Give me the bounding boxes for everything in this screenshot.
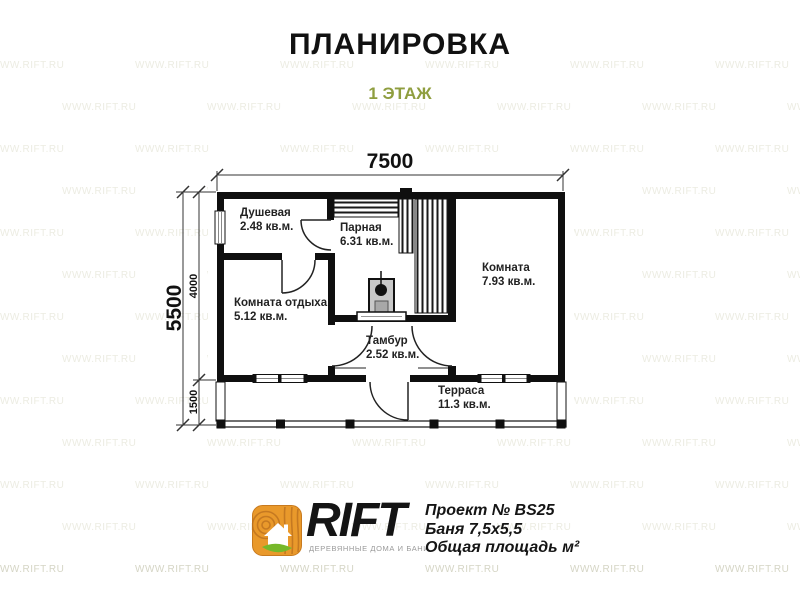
rift-logo-icon xyxy=(252,505,302,556)
page: WWW.RIFT.RUWWW.RIFT.RUWWW.RIFT.RUWWW.RIF… xyxy=(0,0,800,591)
project-info: Проект № BS25 Баня 7,5х5,5 Общая площадь… xyxy=(425,502,579,558)
dimension-width-label: 7500 xyxy=(367,150,414,173)
terrace-edge xyxy=(217,421,566,427)
room-area: 2.52 кв.м. xyxy=(366,348,419,362)
room-name: Комната xyxy=(482,261,535,275)
room-label-terrace: Терраса 11.3 кв.м. xyxy=(438,384,491,412)
room-name: Терраса xyxy=(438,384,491,398)
dimension-height-label: 5500 xyxy=(163,285,186,332)
room-area: 6.31 кв.м. xyxy=(340,235,393,249)
project-size: Баня 7,5х5,5 xyxy=(425,521,579,540)
bench-top xyxy=(334,199,398,217)
room-area: 5.12 кв.м. xyxy=(234,310,327,324)
room-label-sauna: Парная 6.31 кв.м. xyxy=(340,221,393,249)
room-label-tambur: Тамбур 2.52 кв.м. xyxy=(366,334,419,362)
room-area: 7.93 кв.м. xyxy=(482,275,535,289)
room-label-restroom: Комната отдыха 5.12 кв.м. xyxy=(234,296,327,324)
terrace-post-left xyxy=(216,382,225,421)
bench-right xyxy=(415,199,448,313)
terrace-post-right xyxy=(557,382,566,421)
window-bottom-left xyxy=(253,375,307,383)
brand-name: RIFT xyxy=(306,498,405,544)
room-name: Парная xyxy=(340,221,393,235)
room-label-shower: Душевая 2.48 кв.м. xyxy=(240,206,293,234)
floor-subtitle: 1 ЭТАЖ xyxy=(0,84,800,104)
dimension-terrace-label: 1500 xyxy=(188,390,200,414)
project-area: Общая площадь м² xyxy=(425,539,579,558)
room-label-room: Комната 7.93 кв.м. xyxy=(482,261,535,289)
room-name: Тамбур xyxy=(366,334,419,348)
room-area: 2.48 кв.м. xyxy=(240,220,293,234)
sauna-door xyxy=(357,312,406,321)
project-number: Проект № BS25 xyxy=(425,502,579,521)
brand-tagline: ДЕРЕВЯННЫЕ ДОМА И БАНИ xyxy=(309,544,429,553)
room-name: Душевая xyxy=(240,206,293,220)
bench-middle xyxy=(399,199,413,253)
dimension-main-label: 4000 xyxy=(188,274,200,298)
window-left xyxy=(215,211,225,244)
window-bottom-right xyxy=(478,375,530,383)
page-title: ПЛАНИРОВКА xyxy=(0,28,800,62)
room-area: 11.3 кв.м. xyxy=(438,398,491,412)
room-name: Комната отдыха xyxy=(234,296,327,310)
